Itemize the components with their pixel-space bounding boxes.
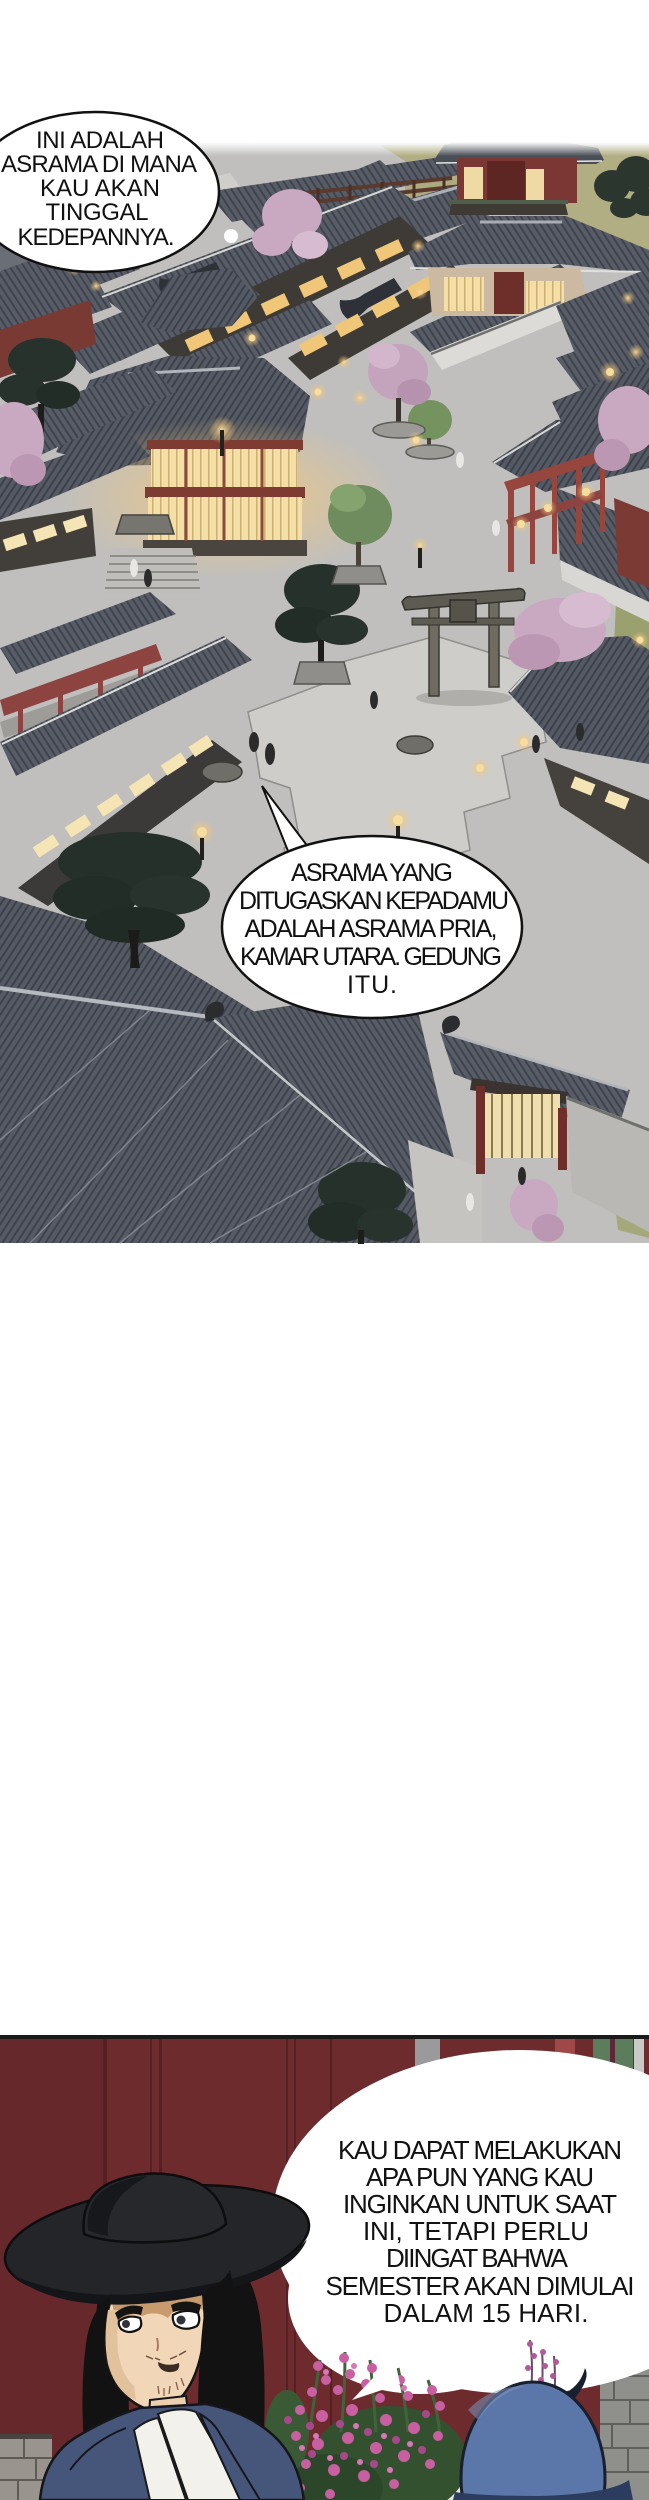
svg-text:DIINGAT BAHWA: DIINGAT BAHWA [386, 2243, 569, 2273]
svg-text:INI, TETAPI PERLU: INI, TETAPI PERLU [363, 2216, 589, 2246]
svg-text:ADALAH ASRAMA PRIA,: ADALAH ASRAMA PRIA, [245, 915, 498, 943]
svg-text:KAMAR UTARA. GEDUNG: KAMAR UTARA. GEDUNG [240, 943, 502, 971]
svg-text:DITUGASKAN KEPADAMU: DITUGASKAN KEPADAMU [239, 887, 509, 915]
svg-text:ASRAMA DI MANA: ASRAMA DI MANA [1, 151, 197, 178]
svg-text:KAU AKAN: KAU AKAN [40, 175, 160, 202]
svg-text:TINGGAL: TINGGAL [46, 199, 149, 226]
svg-text:DALAM 15 HARI.: DALAM 15 HARI. [384, 2298, 589, 2328]
svg-text:KEDEPANNYA.: KEDEPANNYA. [18, 224, 175, 251]
svg-text:ITU.: ITU. [347, 971, 397, 999]
svg-text:INGINKAN UNTUK SAAT: INGINKAN UNTUK SAAT [343, 2189, 617, 2219]
svg-text:KAU DAPAT MELAKUKAN: KAU DAPAT MELAKUKAN [338, 2135, 622, 2165]
svg-text:APA PUN YANG KAU: APA PUN YANG KAU [366, 2162, 594, 2192]
svg-text:INI ADALAH: INI ADALAH [36, 127, 164, 154]
svg-text:ASRAMA YANG: ASRAMA YANG [291, 859, 453, 887]
svg-text:SEMESTER AKAN DIMULAI: SEMESTER AKAN DIMULAI [326, 2271, 635, 2301]
